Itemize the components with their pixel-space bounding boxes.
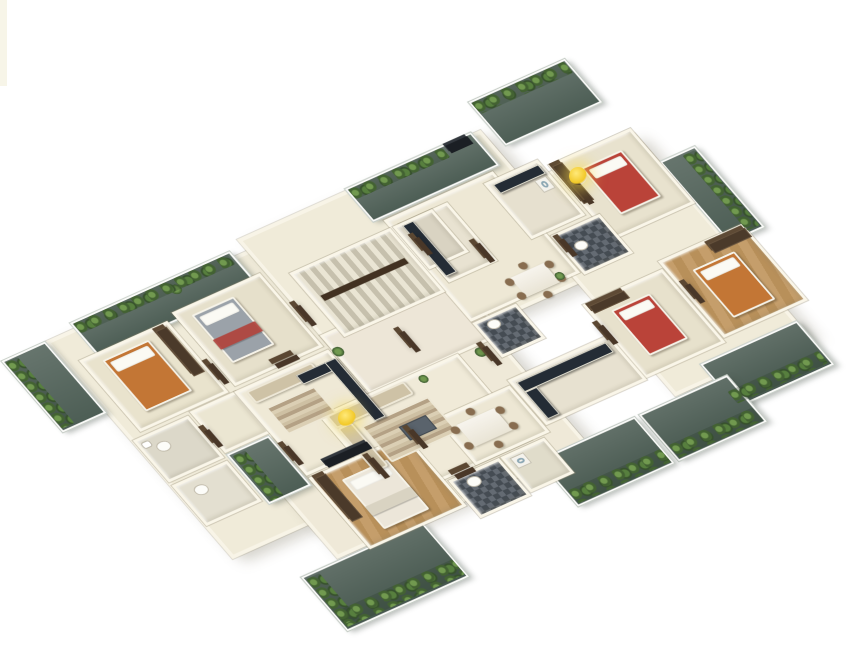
scan-edge-artifact [0, 0, 7, 86]
scene [0, 0, 856, 647]
ceiling-light-glow [338, 409, 356, 427]
floor-plan [0, 36, 856, 647]
ceiling-light-glow [569, 167, 587, 185]
